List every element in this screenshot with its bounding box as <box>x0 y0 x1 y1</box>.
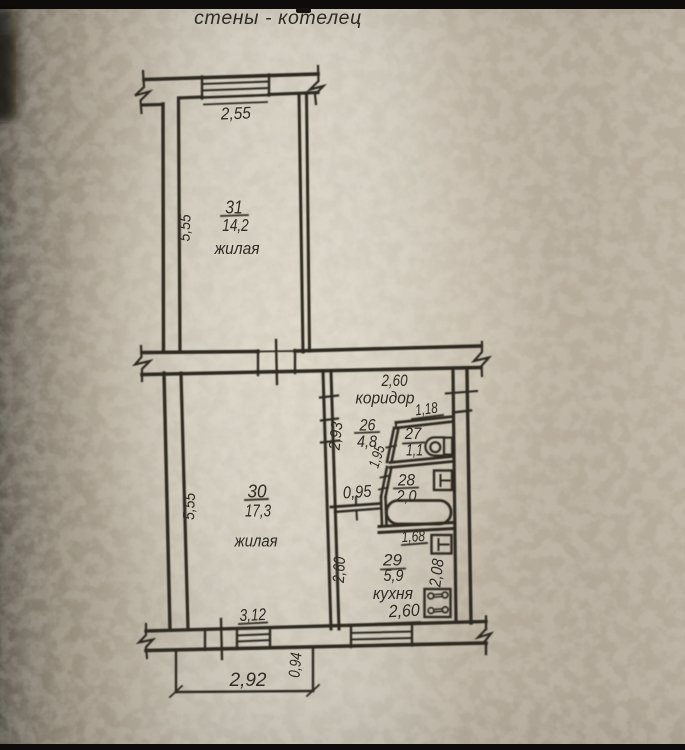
svg-text:14,2: 14,2 <box>222 215 249 235</box>
svg-text:30: 30 <box>248 482 267 502</box>
svg-text:5,55: 5,55 <box>181 492 199 520</box>
svg-text:2,60: 2,60 <box>330 556 349 584</box>
svg-text:2,0: 2,0 <box>396 487 417 506</box>
svg-text:2,92: 2,92 <box>228 670 266 691</box>
svg-text:жилая: жилая <box>234 533 278 551</box>
svg-text:3,12: 3,12 <box>239 605 267 625</box>
svg-text:2,08: 2,08 <box>426 557 447 589</box>
svg-text:5,55: 5,55 <box>177 214 195 242</box>
svg-text:жилая: жилая <box>214 240 260 258</box>
svg-text:17,3: 17,3 <box>245 501 271 521</box>
svg-text:0,95: 0,95 <box>342 482 372 503</box>
svg-text:0,94: 0,94 <box>286 652 305 678</box>
svg-text:коридор: коридор <box>356 389 415 408</box>
svg-text:2,93: 2,93 <box>327 421 347 452</box>
svg-text:2,60: 2,60 <box>381 371 408 390</box>
svg-text:27: 27 <box>404 425 422 443</box>
svg-text:1,18: 1,18 <box>414 400 439 420</box>
svg-text:1,1: 1,1 <box>406 442 423 460</box>
svg-text:5,9: 5,9 <box>384 566 404 585</box>
svg-text:2,60: 2,60 <box>387 600 420 622</box>
svg-text:стены - котелец: стены - котелец <box>194 7 362 29</box>
svg-text:1,68: 1,68 <box>401 528 426 546</box>
svg-text:2,55: 2,55 <box>220 103 252 123</box>
